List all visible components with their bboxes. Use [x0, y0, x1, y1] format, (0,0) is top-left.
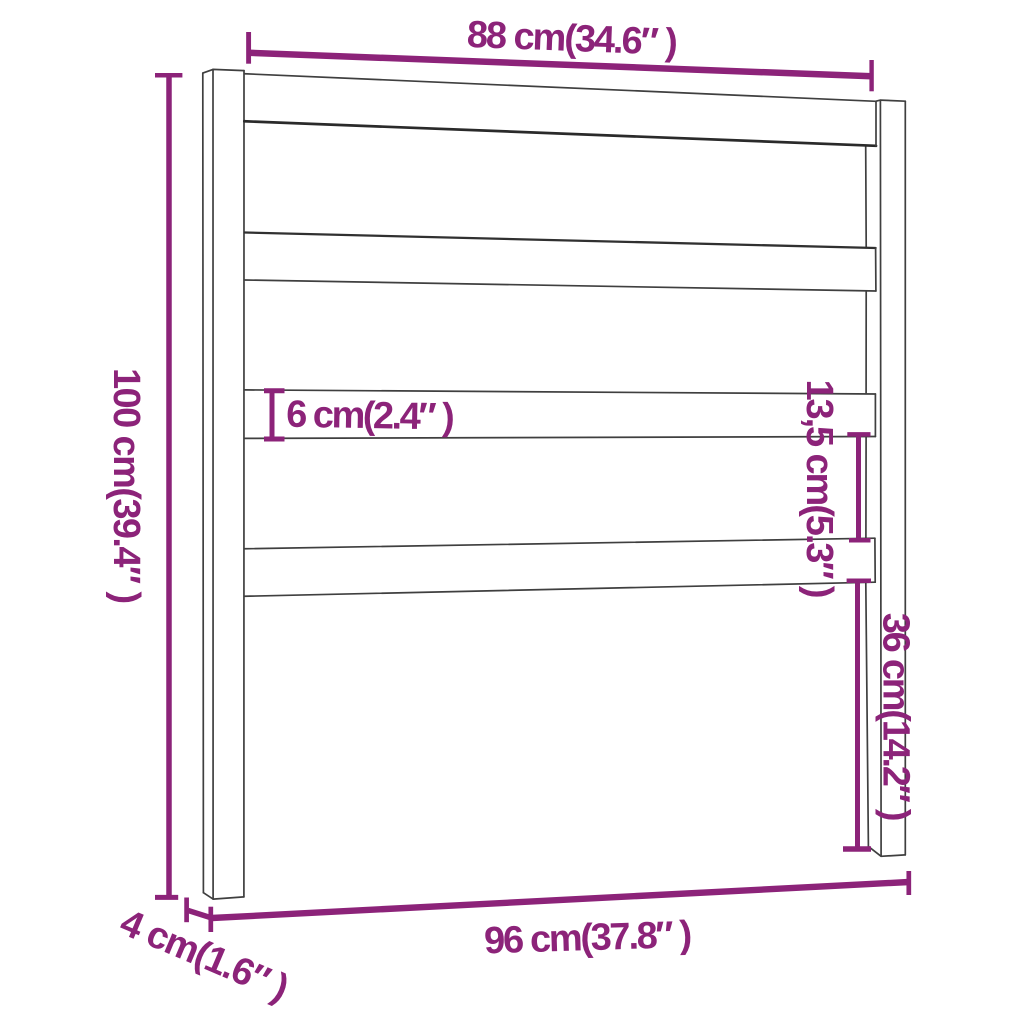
svg-text:36 cm(14.2″ ): 36 cm(14.2″ ) — [875, 613, 917, 820]
svg-text:96 cm(37.8″ ): 96 cm(37.8″ ) — [483, 914, 691, 962]
svg-text:100 cm(39.4″ ): 100 cm(39.4″ ) — [105, 368, 147, 603]
svg-text:13,5 cm(5.3″ ): 13,5 cm(5.3″ ) — [798, 380, 840, 597]
svg-text:6 cm(2.4″ ): 6 cm(2.4″ ) — [286, 394, 454, 439]
svg-text:88 cm(34.6″ ): 88 cm(34.6″ ) — [466, 14, 677, 64]
